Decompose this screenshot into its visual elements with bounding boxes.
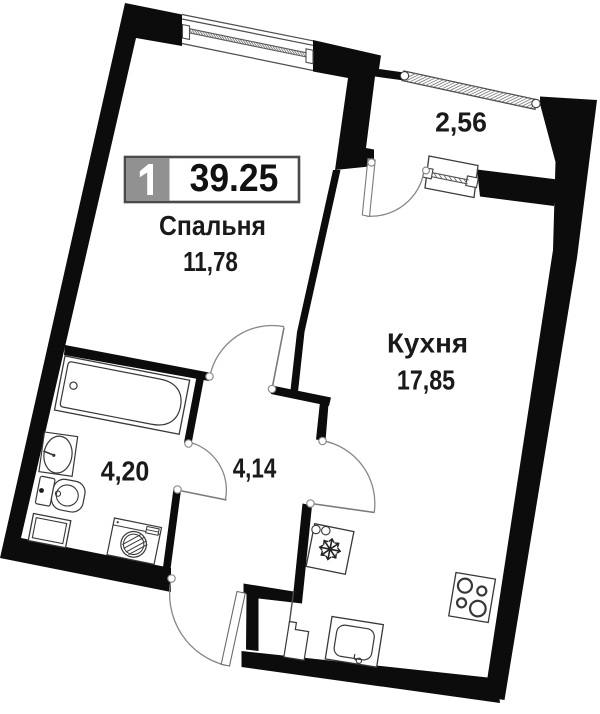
svg-text:39.25: 39.25 — [190, 155, 279, 199]
svg-text:Спальня: Спальня — [159, 210, 266, 242]
svg-text:11,78: 11,78 — [183, 247, 238, 278]
svg-text:4,14: 4,14 — [233, 453, 277, 484]
svg-text:2,56: 2,56 — [435, 106, 487, 138]
svg-text:4,20: 4,20 — [101, 455, 149, 487]
svg-text:17,85: 17,85 — [397, 366, 455, 396]
svg-text:Кухня: Кухня — [387, 327, 468, 358]
